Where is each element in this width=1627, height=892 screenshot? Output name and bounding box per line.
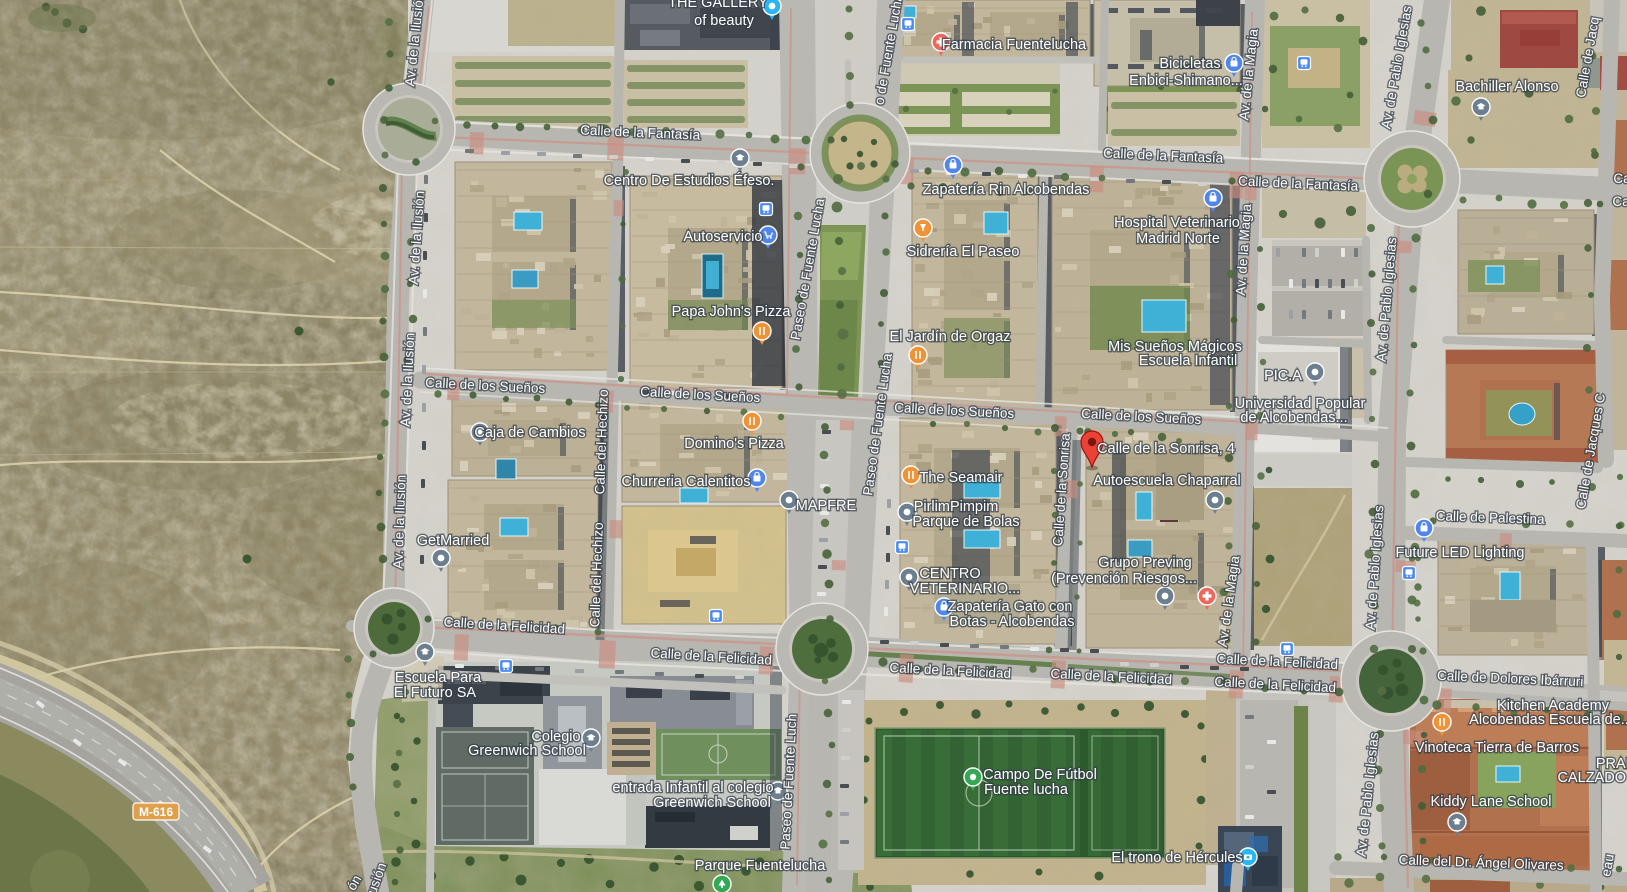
svg-text:El Futuro SA: El Futuro SA xyxy=(394,685,477,701)
svg-text:Madrid Norte: Madrid Norte xyxy=(1136,231,1220,247)
svg-text:Parque Fuentelucha: Parque Fuentelucha xyxy=(695,858,827,874)
svg-text:Zapatería Rin Alcobendas: Zapatería Rin Alcobendas xyxy=(923,182,1090,198)
svg-text:GetMarried: GetMarried xyxy=(417,533,490,549)
svg-text:THE GALLERY: THE GALLERY xyxy=(668,0,768,11)
svg-text:The Seamair: The Seamair xyxy=(919,470,1002,486)
svg-text:Escuela Infantil: Escuela Infantil xyxy=(1139,353,1237,369)
svg-text:Vinoteca Tierra de Barros: Vinoteca Tierra de Barros xyxy=(1415,740,1579,756)
svg-text:Bachiller Alonso: Bachiller Alonso xyxy=(1455,79,1558,95)
svg-text:PirlimPimpim: PirlimPimpim xyxy=(914,499,999,515)
svg-text:El Jardín de Orgaz: El Jardín de Orgaz xyxy=(890,329,1011,345)
svg-text:Caja de Cambios: Caja de Cambios xyxy=(474,425,585,441)
svg-text:VETERINARIO...: VETERINARIO... xyxy=(910,581,1020,597)
svg-text:Enbici-Shimano...: Enbici-Shimano... xyxy=(1129,73,1243,89)
svg-text:Bicicletas: Bicicletas xyxy=(1159,56,1220,72)
svg-text:Parque de Bolas: Parque de Bolas xyxy=(912,514,1019,530)
svg-text:Papa John's Pizza: Papa John's Pizza xyxy=(672,304,792,320)
svg-text:Campo De Fútbol: Campo De Fútbol xyxy=(983,767,1097,783)
svg-text:El trono de Hércules: El trono de Hércules xyxy=(1111,850,1242,866)
svg-text:Future LED Lighting: Future LED Lighting xyxy=(1396,545,1525,561)
svg-text:Alcobendas Escuela de...: Alcobendas Escuela de... xyxy=(1469,712,1627,728)
svg-text:de Alcobendas...: de Alcobendas... xyxy=(1240,410,1347,426)
svg-text:PIC.A: PIC.A xyxy=(1264,368,1302,384)
svg-text:of beauty: of beauty xyxy=(694,13,754,29)
svg-text:Autoescuela Chaparral: Autoescuela Chaparral xyxy=(1093,473,1241,489)
svg-text:Greenwich School: Greenwich School xyxy=(468,743,586,759)
svg-text:Ca: Ca xyxy=(1613,171,1627,186)
svg-text:M-616: M-616 xyxy=(139,805,173,819)
svg-text:entrada Infantil al colegio: entrada Infantil al colegio xyxy=(612,780,773,796)
svg-text:Hospital Veterinario: Hospital Veterinario xyxy=(1114,215,1240,231)
svg-text:Escuela Para: Escuela Para xyxy=(395,670,482,686)
svg-text:Farmacia Fuentelucha: Farmacia Fuentelucha xyxy=(942,37,1087,53)
svg-text:Centro De Estudios Éfeso.: Centro De Estudios Éfeso. xyxy=(604,172,775,189)
svg-text:(Prevención Riesgos...: (Prevención Riesgos... xyxy=(1051,571,1197,587)
svg-text:Grupo Preving: Grupo Preving xyxy=(1098,555,1192,571)
svg-text:Fuente lucha: Fuente lucha xyxy=(984,782,1069,798)
svg-text:Sidrería El Paseo: Sidrería El Paseo xyxy=(907,244,1020,260)
svg-text:Botas - Alcobendas: Botas - Alcobendas xyxy=(950,614,1075,630)
svg-text:CALZADO IN: CALZADO IN xyxy=(1557,770,1627,786)
svg-text:Autoservicio: Autoservicio xyxy=(684,229,763,245)
svg-text:Kiddy Lane School: Kiddy Lane School xyxy=(1431,794,1552,810)
svg-text:MAPFRE: MAPFRE xyxy=(796,498,857,514)
svg-text:CENTRO: CENTRO xyxy=(919,566,980,582)
svg-text:Calle de la Sonrisa, 4: Calle de la Sonrisa, 4 xyxy=(1097,441,1235,457)
svg-text:Zapatería Gato con: Zapatería Gato con xyxy=(948,599,1073,615)
svg-text:Domino's Pizza: Domino's Pizza xyxy=(684,436,784,452)
svg-text:Ca: Ca xyxy=(1612,194,1627,209)
svg-text:Greenwich School: Greenwich School xyxy=(653,795,771,811)
svg-text:Churreria Calentitos: Churreria Calentitos xyxy=(622,474,751,490)
